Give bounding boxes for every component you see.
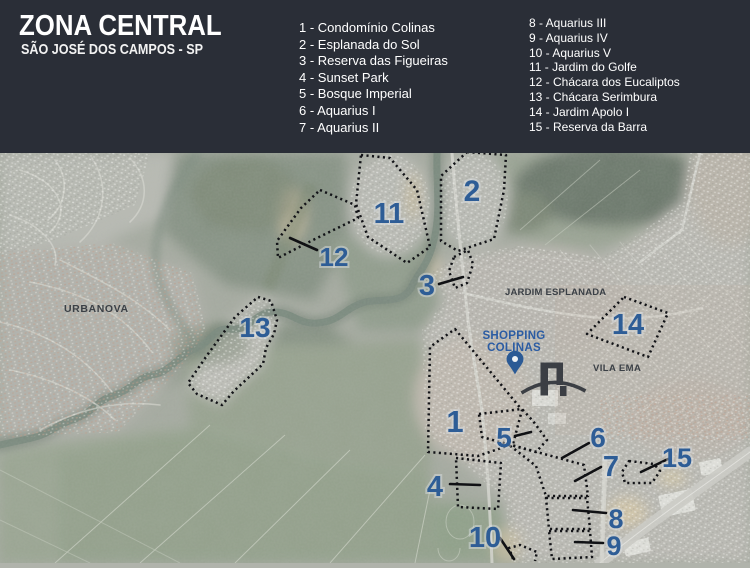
svg-text:2: 2 — [464, 175, 481, 208]
svg-text:15: 15 — [662, 443, 692, 473]
svg-text:13: 13 — [239, 312, 270, 343]
svg-text:10: 10 — [469, 522, 501, 554]
svg-text:14: 14 — [612, 309, 644, 341]
svg-text:3: 3 — [419, 270, 435, 302]
svg-text:SHOPPING: SHOPPING — [482, 330, 545, 342]
svg-text:JARDIM ESPLANADA: JARDIM ESPLANADA — [505, 287, 606, 298]
svg-text:6: 6 — [590, 422, 606, 453]
svg-text:12: 12 — [320, 242, 349, 272]
svg-text:5: 5 — [496, 422, 512, 453]
svg-text:8: 8 — [608, 504, 623, 534]
svg-text:4: 4 — [427, 471, 443, 503]
svg-text:7: 7 — [603, 451, 619, 483]
svg-text:VILA EMA: VILA EMA — [593, 363, 641, 374]
svg-text:9: 9 — [606, 531, 621, 561]
svg-text:1: 1 — [446, 404, 463, 439]
svg-text:11: 11 — [374, 198, 405, 230]
svg-text:URBANOVA: URBANOVA — [64, 303, 129, 315]
